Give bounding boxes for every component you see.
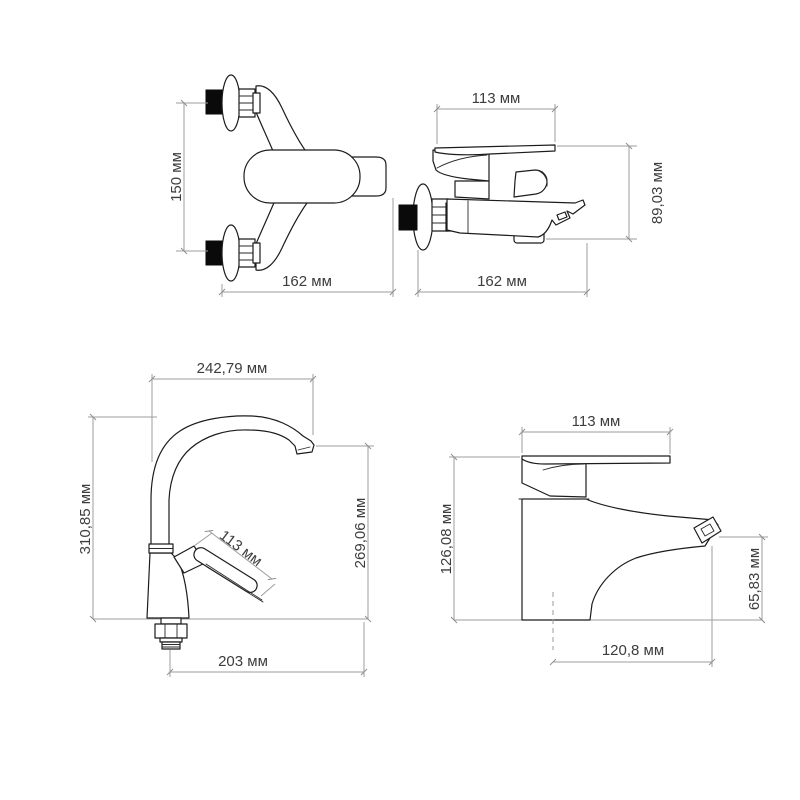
dim-label-mount-spacing: 150 мм: [168, 152, 185, 202]
dim-label-body-width: 113 мм: [572, 413, 621, 430]
bath-mixer-front-view: 150 мм 162 мм: [168, 75, 393, 297]
drawing-canvas: 150 мм 162 мм: [0, 0, 800, 800]
dimension-base-reach: 203 мм: [170, 622, 364, 677]
dim-label-spout-reach-top: 242,79 мм: [197, 360, 268, 377]
kitchen-faucet-view: 242,79 мм 310,85 мм 269,06 мм 113 мм 203…: [77, 360, 374, 677]
dim-label-overall-height: 310,85 мм: [77, 484, 94, 555]
dimension-spout-outlet-height: 269,06 мм: [316, 446, 374, 619]
dimension-body-height: 89,03 мм: [546, 146, 666, 239]
dim-label-overall-depth: 162 мм: [477, 273, 527, 290]
gooseneck-spout: [151, 416, 314, 550]
mixer-body-lower-arm: [256, 198, 307, 270]
dimension-spout-outlet-height: 65,83 мм: [719, 537, 768, 620]
dimension-body-depth: 113 мм: [437, 90, 555, 144]
lever-handle: [435, 145, 555, 155]
cartridge-housing: [522, 459, 586, 497]
thread-block: [206, 90, 223, 114]
nut-connector: [253, 93, 260, 113]
dim-label-spout-outlet-height: 269,06 мм: [352, 498, 369, 569]
thread-block: [206, 241, 223, 265]
diverter-knob: [514, 170, 547, 197]
escutcheon-flange: [222, 75, 240, 131]
dim-label-spout-reach: 120,8 мм: [602, 642, 664, 659]
dim-label-overall-width: 162 мм: [282, 273, 332, 290]
mounting-shank: [155, 618, 187, 649]
wall-mount-bottom: [206, 225, 260, 281]
dimension-mount-spacing: 150 мм: [168, 103, 208, 251]
bath-mixer-side-view: 113 мм 89,03 мм 162 мм: [399, 90, 666, 297]
dim-label-body-height: 89,03 мм: [649, 162, 666, 224]
dimension-overall-height: 126,08 мм: [438, 457, 520, 620]
mixer-body-capsule: [244, 150, 360, 203]
dim-label-overall-height: 126,08 мм: [438, 504, 455, 575]
faucet-body: [522, 499, 718, 620]
body-neck: [455, 181, 489, 199]
technical-drawing: 150 мм 162 мм: [0, 0, 800, 800]
nut-connector: [253, 243, 260, 263]
lever-handle: [522, 456, 670, 464]
dim-label-base-reach: 203 мм: [218, 653, 268, 670]
dim-label-body-depth: 113 мм: [472, 90, 521, 107]
basin-faucet-view: 113 мм 126,08 мм 65,83 мм 120,8 мм: [438, 413, 768, 667]
wall-mount-top: [206, 75, 260, 131]
escutcheon-flange: [222, 225, 240, 281]
thread-block: [399, 205, 417, 230]
dimension-body-width: 113 мм: [522, 413, 670, 454]
dim-label-spout-outlet-height: 65,83 мм: [746, 548, 763, 610]
dimension-overall-height: 310,85 мм: [77, 417, 157, 619]
dimension-overall-depth: 162 мм: [418, 243, 587, 297]
mixer-body-upper-arm: [256, 86, 307, 158]
